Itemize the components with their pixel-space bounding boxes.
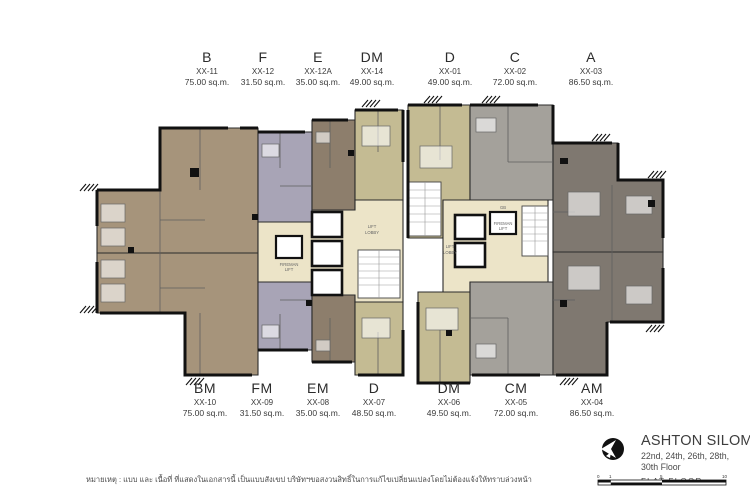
scale-segment	[598, 480, 611, 483]
lift-shaft	[455, 215, 485, 239]
unit-cm-polygon	[470, 282, 553, 375]
scale-label-1: 1	[609, 474, 612, 479]
fireman-lift-label: LIFT	[499, 226, 508, 231]
lift-lobby-label: LOBBY	[443, 250, 457, 255]
left-wing	[97, 110, 403, 375]
scale-label-0: 0	[597, 474, 600, 479]
unit-area: 49.00 sq.m.	[329, 78, 415, 87]
unit-area: 72.00 sq.m.	[472, 78, 558, 87]
unit-area: 86.50 sq.m.	[548, 78, 634, 87]
fireman-lift-shaft	[276, 236, 302, 258]
unit-number: XX-07	[331, 399, 417, 407]
unit-label-top-7: A XX-03 86.50 sq.m.	[548, 50, 634, 87]
unit-label-top-4: DM XX-14 49.00 sq.m.	[329, 50, 415, 87]
unit-number: XX-14	[329, 68, 415, 76]
footnote-disclaimer: หมายเหตุ : แบบ และ เนื้อที่ ที่แสดงในเอก…	[86, 474, 532, 486]
unit-type: AM	[549, 381, 635, 396]
unit-number: XX-03	[548, 68, 634, 76]
floors-line1: 22nd, 24th, 26th, 28th,	[641, 451, 729, 461]
unit-type: CM	[473, 381, 559, 396]
unit-dm14-polygon	[355, 110, 403, 200]
unit-area: 86.50 sq.m.	[549, 409, 635, 418]
unit-fm-polygon	[258, 282, 312, 350]
fireman-lift-label: LIFT	[285, 267, 294, 272]
unit-type: D	[331, 381, 417, 396]
lift-shaft	[312, 241, 342, 266]
lift-shaft	[312, 212, 342, 237]
floors-line2: 30th Floor	[641, 462, 681, 472]
project-name: ASHTON SILOM	[641, 433, 750, 449]
lift-lobby-label: LIFT	[446, 244, 455, 249]
lift-shaft	[455, 243, 485, 267]
unit-area: 48.50 sq.m.	[331, 409, 417, 418]
unit-dm06-polygon	[418, 292, 470, 383]
gb-label: GB	[500, 205, 506, 210]
unit-number: XX-05	[473, 399, 559, 407]
unit-em-polygon	[312, 295, 355, 362]
lift-lobby-label: LIFT	[368, 224, 377, 229]
unit-type: C	[472, 50, 558, 65]
floorplan-page: FIREMAN LIFT LIFT LOBBY LIFT LOBBY GB FI…	[0, 0, 750, 500]
scale-segment	[611, 483, 662, 486]
unit-type: A	[548, 50, 634, 65]
scale-label-5: 5	[660, 474, 663, 479]
unit-label-top-6: C XX-02 72.00 sq.m.	[472, 50, 558, 87]
lift-shaft	[312, 270, 342, 295]
scale-bar: 0 1 5 10	[594, 472, 742, 490]
unit-label-bottom-4: D XX-07 48.50 sq.m.	[331, 381, 417, 418]
unit-type: DM	[329, 50, 415, 65]
unit-label-bottom-7: AM XX-04 86.50 sq.m.	[549, 381, 635, 418]
lift-lobby-label: LOBBY	[365, 230, 379, 235]
unit-label-bottom-6: CM XX-05 72.00 sq.m.	[473, 381, 559, 418]
ashton-logo-icon	[598, 435, 628, 465]
unit-d07-polygon	[355, 302, 403, 375]
scale-segment	[662, 480, 726, 483]
unit-area: 72.00 sq.m.	[473, 409, 559, 418]
unit-number: XX-02	[472, 68, 558, 76]
unit-number: XX-04	[549, 399, 635, 407]
scale-label-10: 10	[722, 474, 728, 479]
